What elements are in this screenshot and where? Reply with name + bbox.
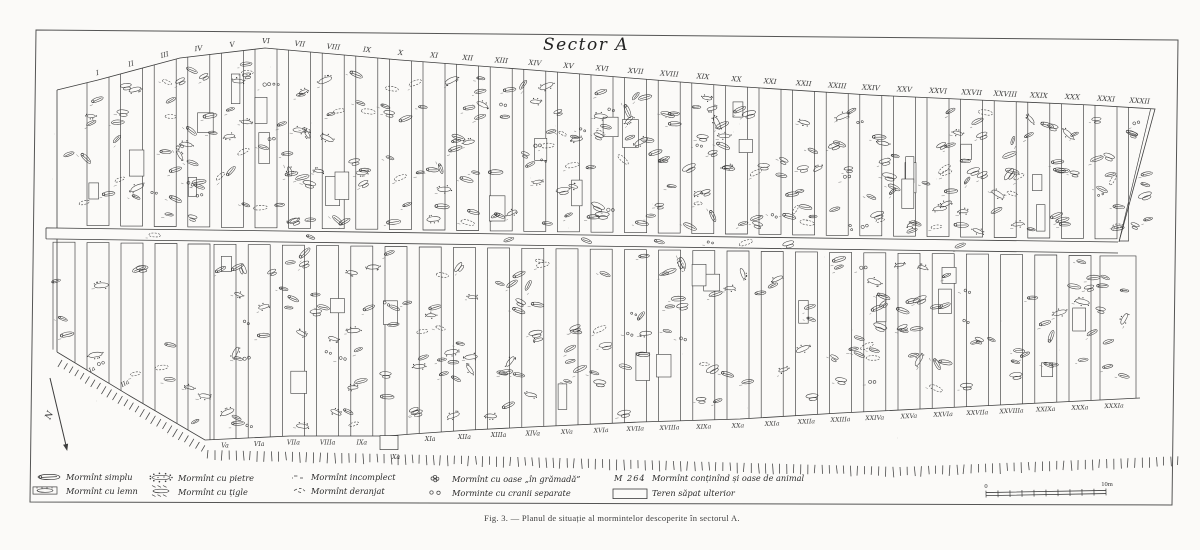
grave-symbol <box>766 211 778 220</box>
grave-symbol <box>596 269 611 279</box>
grave-symbol <box>1099 364 1113 372</box>
later-excavation-rect <box>383 301 397 325</box>
grave-symbol <box>860 341 875 351</box>
grave-symbol <box>553 109 563 117</box>
trench-label-bottom: VIa <box>254 441 265 448</box>
grave-symbol <box>314 73 334 88</box>
grave-symbol <box>707 207 718 223</box>
trench-label-top: XV <box>562 62 575 71</box>
grave-symbol <box>500 115 510 118</box>
trench-label-top: XI <box>429 51 439 60</box>
trench-column-top <box>793 90 815 235</box>
grave-symbol <box>1009 372 1022 380</box>
trench-column-bottom <box>87 243 109 384</box>
grave-symbol <box>712 120 730 132</box>
legend-symbol-text: M 264 <box>613 473 646 483</box>
grave-symbol <box>524 391 538 399</box>
grave-symbol <box>949 127 965 138</box>
grave-symbol <box>1097 192 1104 197</box>
page-title: Sector A <box>543 35 629 55</box>
grave-symbol <box>832 109 852 123</box>
grave-symbol <box>928 224 942 230</box>
grave-symbol <box>1067 131 1080 140</box>
grave-symbol <box>863 192 877 202</box>
grave-symbol <box>593 379 606 387</box>
grave-symbol <box>681 162 697 175</box>
grave-symbol <box>1130 222 1140 231</box>
trench-label-bottom: XXVa <box>900 413 918 421</box>
grave-symbol <box>63 151 75 158</box>
trench-column-bottom <box>214 244 236 439</box>
trench-label-bottom: XXXIa <box>1103 402 1124 410</box>
grave-symbol <box>484 412 497 420</box>
trench-label-top: XVIII <box>659 69 679 79</box>
grave-symbol <box>556 186 571 195</box>
grave-symbol <box>662 304 675 310</box>
grave-symbol <box>886 188 897 199</box>
legend-symbol-mormint-incomplect <box>292 476 303 479</box>
grave-symbol <box>1116 311 1131 329</box>
grave-symbol <box>1056 222 1070 228</box>
grave-symbol <box>826 352 839 362</box>
trench-column-bottom <box>795 252 817 416</box>
grave-symbol <box>256 82 271 90</box>
grave-symbol <box>812 162 824 172</box>
grave-symbol <box>1099 151 1115 162</box>
trench-label-bottom: XIIa <box>457 434 471 441</box>
trench-label-top: XIX <box>695 72 710 81</box>
grave-symbol <box>380 371 392 378</box>
grave-symbol <box>51 278 61 283</box>
trench-label-top: V <box>229 40 236 49</box>
grave-symbol <box>361 108 376 115</box>
trench-label-top: X <box>397 49 405 58</box>
grave-symbol <box>127 192 140 203</box>
grave-symbol <box>495 280 505 286</box>
trench-label-bottom: XXVIa <box>932 411 953 419</box>
grave-symbol <box>1095 306 1106 314</box>
trench-column-bottom <box>830 252 852 413</box>
grave-symbol <box>614 409 631 419</box>
grave-symbol <box>473 76 485 83</box>
grave-symbol <box>213 171 227 185</box>
grave-symbol <box>161 212 173 220</box>
grave-symbol <box>1024 296 1038 302</box>
grave-symbol <box>680 220 698 232</box>
scale-end-label: 10m <box>1101 481 1113 488</box>
grave-symbol <box>1072 295 1091 308</box>
grave-symbol <box>1097 284 1109 288</box>
grave-symbol <box>196 193 203 198</box>
site-plan: IIIIIIIVVVIVIIVIIIIXXXIXIIXIIIXIVXVXVIXV… <box>0 0 1200 550</box>
grave-symbol <box>970 340 980 345</box>
legend-label: Mormînt cu oase „în grămadă” <box>451 474 580 484</box>
grave-symbol <box>311 293 321 296</box>
grave-symbol <box>348 421 359 427</box>
grave-symbol <box>380 394 394 399</box>
grave-symbol <box>861 223 869 229</box>
grave-symbol <box>1036 320 1052 330</box>
grave-symbol <box>570 364 589 377</box>
grave-symbol <box>346 68 364 81</box>
grave-symbol <box>528 301 545 309</box>
legend-symbol-mormint-cu-tigle <box>152 486 169 497</box>
grave-symbol <box>451 139 461 143</box>
grave-symbol <box>398 114 413 123</box>
grave-symbol <box>747 214 764 225</box>
later-excavation-rect <box>733 102 743 117</box>
grave-symbol <box>508 305 525 317</box>
grave-symbol <box>405 78 422 90</box>
trench-label-bottom: XXVIIa <box>965 409 988 417</box>
grave-symbol <box>428 304 441 311</box>
grave-symbol <box>584 215 600 221</box>
grave-symbol <box>1049 306 1069 319</box>
trench-label-bottom: VIIIa <box>320 440 336 447</box>
trench-xa-notch <box>380 436 398 450</box>
grave-symbol <box>908 352 919 357</box>
grave-symbol <box>91 280 109 290</box>
legend-label: Mormînt simplu <box>65 472 133 482</box>
grave-symbol <box>755 290 767 295</box>
grave-symbol <box>665 121 681 127</box>
grave-symbol <box>716 132 732 140</box>
later-excavation-rect <box>89 183 99 199</box>
trench-column-bottom <box>488 248 510 429</box>
grave-symbol <box>608 108 615 112</box>
grave-symbol <box>591 88 607 98</box>
grave-symbol <box>423 167 439 175</box>
grave-symbol <box>289 217 301 227</box>
grave-symbol <box>832 377 847 385</box>
grave-symbol <box>426 214 440 224</box>
grave-symbol <box>310 309 322 316</box>
grave-symbol <box>516 79 529 94</box>
grave-symbol <box>348 158 360 167</box>
trench-column-top <box>188 55 210 227</box>
trench-label-bottom: XXIVa <box>864 414 884 422</box>
grave-symbol <box>525 160 536 168</box>
grave-symbol <box>238 117 254 126</box>
trench-label-bottom: XVa <box>560 429 574 436</box>
grave-symbol <box>841 166 854 173</box>
grave-symbol <box>951 242 966 252</box>
slope-hatching <box>58 360 1178 477</box>
grave-symbol <box>295 328 308 339</box>
grave-symbol <box>238 201 250 209</box>
grave-symbol <box>488 170 503 175</box>
grave-symbol <box>348 384 359 392</box>
legend-symbol-mormint-cu-lemn <box>33 487 57 494</box>
grave-symbol <box>638 94 652 102</box>
trench-label-bottom: XXIIIa <box>830 416 851 424</box>
grave-symbol <box>718 369 735 378</box>
trench-label-top: XXI <box>763 77 777 86</box>
later-excavation-rect <box>572 180 583 206</box>
grave-symbol <box>230 289 245 300</box>
grave-symbol <box>710 398 723 406</box>
grave-symbol <box>758 163 770 170</box>
trench-label-bottom: IXa <box>356 440 368 447</box>
grave-symbol <box>530 98 542 106</box>
grave-symbol <box>351 346 364 356</box>
grave-symbol <box>854 265 868 272</box>
grave-symbol <box>878 171 897 182</box>
grave-symbol <box>436 160 444 174</box>
grave-symbol <box>700 362 710 366</box>
grave-symbol <box>537 79 556 93</box>
grave-symbol <box>702 240 713 246</box>
later-excavation-rect <box>692 264 706 286</box>
grave-symbol <box>436 272 449 278</box>
legend-symbol-mormint-simplu <box>38 474 60 479</box>
grave-symbol <box>700 188 712 197</box>
grave-symbol <box>296 246 312 262</box>
grave-symbol <box>574 126 586 135</box>
grave-symbol <box>865 346 879 354</box>
grave-symbol <box>775 155 789 166</box>
grave-symbol <box>675 254 688 271</box>
trench-label-top: II <box>126 59 135 68</box>
grave-symbol <box>1100 274 1110 280</box>
trench-label-top: XXXI <box>1096 94 1115 103</box>
trench-column-bottom <box>624 250 646 423</box>
later-excavation-rect <box>739 139 752 152</box>
grave-symbol <box>1115 372 1130 381</box>
later-excavation-rect <box>221 256 231 271</box>
grave-symbol <box>1066 170 1079 177</box>
later-excavation-rect <box>231 74 240 104</box>
grave-symbol <box>961 176 972 188</box>
grave-symbol <box>938 198 953 210</box>
grave-symbol <box>456 175 474 185</box>
grave-symbol <box>825 141 842 153</box>
grave-symbol <box>435 203 450 209</box>
grave-symbol <box>938 359 952 366</box>
grave-symbol <box>223 107 236 115</box>
grave-symbol <box>238 264 248 276</box>
figure-caption: Fig. 3. — Planul de situație al morminte… <box>484 513 740 523</box>
grave-symbol <box>385 85 399 91</box>
legend-label: Mormînt deranjat <box>310 486 385 496</box>
trench-label-bottom: XVIIIa <box>658 424 679 432</box>
trench-label-bottom: XIXa <box>695 423 711 431</box>
grave-symbol <box>391 173 408 184</box>
grave-symbol <box>499 103 506 107</box>
legend-symbol-morminte-cu-cranii-separate <box>430 491 440 495</box>
grave-symbol <box>713 139 731 151</box>
grave-symbol <box>736 238 754 248</box>
grave-symbol <box>751 220 763 229</box>
grave-symbol <box>668 296 685 301</box>
grave-symbol <box>1137 190 1153 202</box>
grave-symbol <box>296 260 311 271</box>
grave-symbol <box>570 135 579 139</box>
scale-bar <box>986 489 1106 498</box>
grave-symbol <box>472 97 490 112</box>
grave-symbol <box>416 329 428 335</box>
trench-label-top: XII <box>461 54 473 63</box>
grave-symbol <box>1081 284 1095 293</box>
grave-symbol <box>183 158 199 169</box>
grave-symbol <box>267 268 278 277</box>
trench-column-bottom <box>248 245 270 438</box>
grave-symbol <box>328 336 341 344</box>
grave-symbol <box>292 173 310 182</box>
grave-symbol <box>747 168 763 179</box>
grave-symbol <box>872 321 888 333</box>
trench-column-bottom <box>966 254 988 407</box>
grave-symbol <box>990 206 1003 215</box>
grave-symbol <box>555 129 567 138</box>
grave-symbol <box>735 221 749 229</box>
trench-label-top: VI <box>262 37 270 45</box>
trench-column-bottom <box>590 249 612 424</box>
trench-column-bottom <box>1001 255 1023 405</box>
grave-symbol <box>165 96 176 104</box>
grave-symbol <box>876 140 891 147</box>
grave-symbol <box>399 300 412 306</box>
grave-symbol <box>846 347 859 354</box>
grave-symbol <box>237 61 252 67</box>
trench-label-top: XXVIII <box>992 90 1017 99</box>
later-excavation-rect <box>902 179 914 208</box>
grave-symbol <box>79 199 90 205</box>
grave-symbol <box>561 344 578 357</box>
grave-symbol <box>512 270 526 279</box>
trench-label-bottom: XXIIa <box>797 418 816 426</box>
grave-symbol <box>800 219 815 226</box>
grave-symbol <box>542 221 553 226</box>
grave-symbol <box>794 165 809 173</box>
trench-label-bottom: Va <box>221 443 229 450</box>
grave-symbol <box>906 227 918 234</box>
grave-symbol <box>441 74 460 88</box>
grave-symbol <box>444 348 460 357</box>
grave-symbol <box>942 107 956 118</box>
grave-symbol <box>146 233 161 239</box>
trench-column-top <box>860 94 882 236</box>
trench-column-bottom <box>155 244 177 424</box>
grave-symbol <box>83 119 97 128</box>
grave-symbol <box>866 275 883 288</box>
trench-label-top: XXVII <box>960 88 982 97</box>
grave-symbol <box>166 166 183 176</box>
grave-symbol <box>1047 330 1055 343</box>
grave-symbol <box>562 162 580 171</box>
trench-label-top: XVII <box>627 67 644 76</box>
grave-symbol <box>1120 289 1129 293</box>
grave-symbol <box>1011 359 1020 364</box>
grave-symbol <box>660 328 672 335</box>
grave-symbol <box>1127 120 1140 129</box>
later-excavation-rect <box>330 299 344 313</box>
grave-symbol <box>592 212 609 220</box>
grave-symbol <box>445 144 463 155</box>
trench-column-bottom <box>53 242 75 363</box>
grave-symbol <box>165 193 183 206</box>
grave-symbol <box>333 108 345 114</box>
grave-symbol <box>664 184 677 190</box>
grave-symbol <box>460 105 476 113</box>
trench-column-top <box>994 101 1016 238</box>
grave-symbol <box>177 139 194 149</box>
grave-symbol <box>1002 150 1017 159</box>
grave-symbol <box>621 330 634 338</box>
grave-symbol <box>779 211 796 220</box>
grave-symbol <box>254 333 270 340</box>
grave-symbol <box>155 364 169 370</box>
later-excavation-rect <box>1032 175 1042 191</box>
grave-symbol <box>311 166 325 175</box>
trench-label-top: XIV <box>527 59 542 68</box>
grave-symbol <box>619 363 633 371</box>
grave-symbol <box>850 349 866 361</box>
grave-symbol <box>225 165 236 177</box>
scanned-figure-page: IIIIIIIVVVIVIIVIIIIXXXIXIIXIIIXIVXVXVIXV… <box>0 0 1200 550</box>
grave-symbol <box>503 236 514 242</box>
trench-label-bottom: XXa <box>731 422 745 429</box>
trench-label-bottom: XXIa <box>764 420 780 428</box>
grave-symbol <box>196 72 210 83</box>
grave-symbol <box>287 294 299 303</box>
grave-symbol <box>654 238 665 244</box>
later-excavation-rect <box>1036 205 1045 231</box>
grave-symbol <box>1009 136 1018 149</box>
grave-symbol <box>500 87 516 93</box>
grave-symbol <box>1102 338 1114 345</box>
grave-symbol <box>848 224 853 231</box>
grave-symbol <box>910 326 923 331</box>
grave-symbol <box>351 99 365 109</box>
trench-label-bottom: XIIIa <box>490 432 507 439</box>
grave-symbol <box>895 327 909 335</box>
grave-symbol <box>1003 189 1018 198</box>
grave-symbol <box>172 146 186 162</box>
grave-symbol <box>172 77 186 88</box>
grave-symbol <box>987 186 1006 202</box>
trench-label-top: III <box>159 50 170 60</box>
grave-symbol <box>643 214 656 220</box>
legend-label: Mormînt cu țigle <box>177 487 248 497</box>
grave-symbol <box>1140 182 1150 188</box>
grave-symbol <box>692 188 704 198</box>
grave-symbol <box>415 105 427 110</box>
grave-symbol <box>293 421 310 430</box>
grave-symbol <box>1087 155 1105 165</box>
later-excavation-rect <box>255 97 267 123</box>
grave-symbol <box>722 284 736 292</box>
grave-symbol <box>596 341 613 351</box>
grave-symbol <box>958 287 971 296</box>
legend-label: Mormînt cu pietre <box>177 473 254 483</box>
grave-symbol <box>54 314 68 324</box>
grave-symbol <box>383 219 401 225</box>
grave-symbol <box>520 151 530 159</box>
grave-symbol <box>1108 174 1117 186</box>
grave-symbol <box>581 237 593 245</box>
grave-symbol <box>910 220 922 227</box>
grave-symbol <box>1073 258 1086 265</box>
grave-symbol <box>501 400 515 409</box>
grave-symbol <box>970 225 986 238</box>
grave-symbol <box>255 301 271 312</box>
grave-symbol <box>617 153 630 165</box>
trench-label-bottom: XIa <box>424 436 436 443</box>
grave-symbol <box>637 331 652 338</box>
grave-symbol <box>676 258 686 273</box>
grave-symbol <box>691 143 703 148</box>
